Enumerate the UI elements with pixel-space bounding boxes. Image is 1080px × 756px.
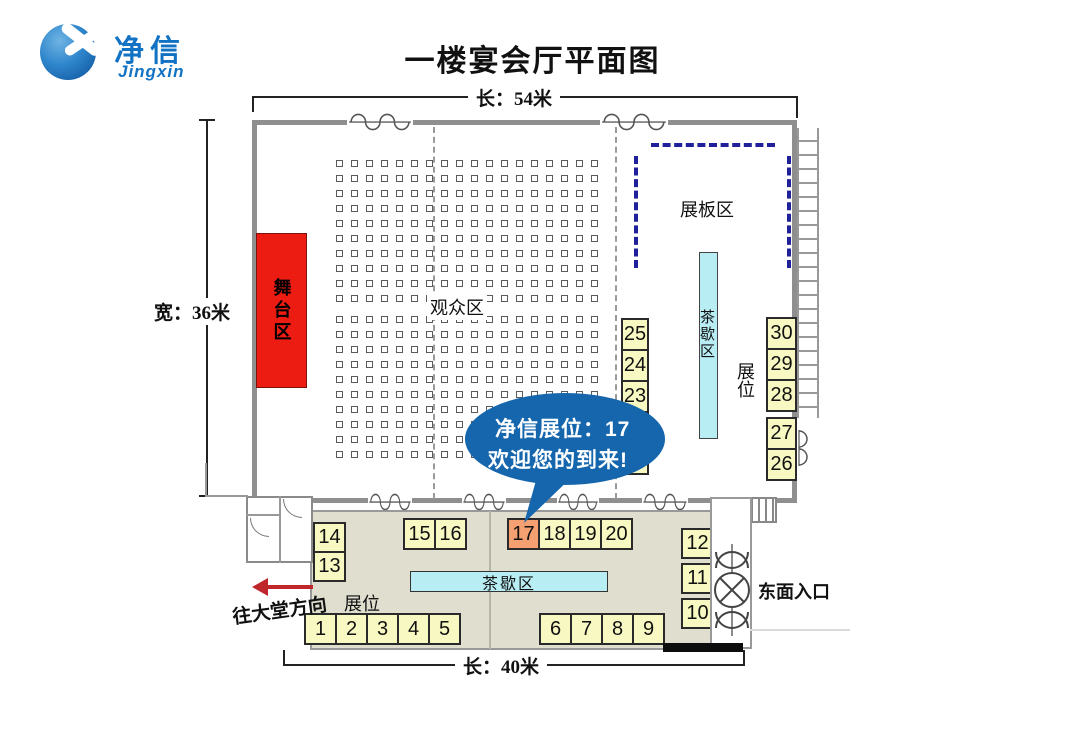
seat-square xyxy=(366,265,373,272)
seat-square xyxy=(501,361,508,368)
seat-square xyxy=(441,451,448,458)
seat-square xyxy=(336,265,343,272)
seat-square xyxy=(456,376,463,383)
seat-square xyxy=(336,406,343,413)
seat-square xyxy=(501,160,508,167)
seat-square xyxy=(336,316,343,323)
seat-square xyxy=(486,316,493,323)
seat-square xyxy=(486,235,493,242)
callout-bubble: 净信展位：17 欢迎您的到来! xyxy=(462,392,668,532)
booth-2: 2 xyxy=(335,613,368,645)
seat-square xyxy=(546,160,553,167)
seat-square xyxy=(366,280,373,287)
seat-square xyxy=(366,205,373,212)
seat-square xyxy=(426,205,433,212)
seat-square xyxy=(456,205,463,212)
seat-square xyxy=(441,190,448,197)
top-dimension-label: 长：54米 xyxy=(468,84,560,111)
tea-area-horizontal: 茶歇区 xyxy=(410,571,608,592)
seat-square xyxy=(456,280,463,287)
seat-square xyxy=(486,265,493,272)
seat-square xyxy=(336,280,343,287)
hall-booth-column-right-upper: 302928 xyxy=(766,317,797,412)
seat-square xyxy=(531,235,538,242)
seat-square xyxy=(426,235,433,242)
hatched-wall xyxy=(797,128,819,418)
double-door-icon xyxy=(347,109,413,135)
seat-square xyxy=(441,175,448,182)
seat-square xyxy=(576,205,583,212)
booth-8: 8 xyxy=(601,613,634,645)
seat-square xyxy=(396,361,403,368)
seat-square xyxy=(471,250,478,257)
seat-square xyxy=(381,406,388,413)
seat-square xyxy=(531,361,538,368)
seat-square xyxy=(366,160,373,167)
seat-square xyxy=(411,316,418,323)
seat-square xyxy=(351,250,358,257)
seat-square xyxy=(381,295,388,302)
seat-square xyxy=(426,406,433,413)
seat-square xyxy=(336,376,343,383)
display-board-dashed-line xyxy=(634,156,638,268)
seat-square xyxy=(501,220,508,227)
seat-square xyxy=(576,346,583,353)
seat-square xyxy=(441,235,448,242)
seat-square xyxy=(366,421,373,428)
seat-square xyxy=(576,175,583,182)
seat-square xyxy=(576,361,583,368)
seat-square xyxy=(426,280,433,287)
seat-square xyxy=(381,316,388,323)
seat-square xyxy=(486,220,493,227)
seat-square xyxy=(441,205,448,212)
seat-square xyxy=(441,220,448,227)
seat-square xyxy=(411,406,418,413)
display-board-dashed-line xyxy=(787,156,791,268)
seat-square xyxy=(366,316,373,323)
seat-square xyxy=(501,175,508,182)
seat-square xyxy=(486,205,493,212)
seat-square xyxy=(396,421,403,428)
seat-square xyxy=(531,160,538,167)
seat-square xyxy=(396,175,403,182)
seat-square xyxy=(516,376,523,383)
seat-square xyxy=(336,205,343,212)
seat-square xyxy=(471,160,478,167)
seat-square xyxy=(516,175,523,182)
seat-square xyxy=(381,175,388,182)
seat-square xyxy=(381,451,388,458)
left-dimension-label: 宽：36米 xyxy=(146,298,238,325)
seat-square xyxy=(426,265,433,272)
seat-square xyxy=(426,220,433,227)
seat-square xyxy=(336,361,343,368)
seat-square xyxy=(516,160,523,167)
seat-square xyxy=(426,391,433,398)
seat-square xyxy=(546,316,553,323)
seat-square xyxy=(426,361,433,368)
seat-square xyxy=(561,265,568,272)
seat-square xyxy=(561,220,568,227)
audience-label: 观众区 xyxy=(427,294,487,320)
seat-square xyxy=(441,160,448,167)
seat-square xyxy=(381,280,388,287)
seat-square xyxy=(516,190,523,197)
seat-square xyxy=(576,220,583,227)
seat-square xyxy=(591,280,598,287)
seat-square xyxy=(366,331,373,338)
seat-square xyxy=(426,451,433,458)
seat-square xyxy=(546,205,553,212)
seat-square xyxy=(576,265,583,272)
seat-square xyxy=(561,235,568,242)
seat-square xyxy=(591,376,598,383)
foyer-booths-top-left: 1516 xyxy=(403,518,467,550)
foyer-booths-bottom-left: 12345 xyxy=(304,613,461,645)
seat-square xyxy=(366,175,373,182)
seat-square xyxy=(516,295,523,302)
seat-square xyxy=(411,160,418,167)
seat-square xyxy=(366,346,373,353)
seat-square xyxy=(351,280,358,287)
seat-square xyxy=(411,265,418,272)
seat-square xyxy=(576,235,583,242)
seat-square xyxy=(426,421,433,428)
booth-27: 27 xyxy=(766,417,797,450)
seat-square xyxy=(426,436,433,443)
seat-square xyxy=(336,220,343,227)
seat-square xyxy=(426,376,433,383)
seat-square xyxy=(516,316,523,323)
seat-square xyxy=(516,265,523,272)
seat-square xyxy=(426,250,433,257)
seat-square xyxy=(411,250,418,257)
seat-square xyxy=(441,280,448,287)
seat-square xyxy=(441,250,448,257)
bottom-dimension-tick xyxy=(743,650,745,666)
seat-square xyxy=(501,190,508,197)
booth-28: 28 xyxy=(766,379,797,412)
seat-square xyxy=(546,175,553,182)
seat-square xyxy=(591,346,598,353)
seat-square xyxy=(486,331,493,338)
seat-square xyxy=(351,160,358,167)
seat-square xyxy=(381,421,388,428)
lobby-arrow-icon xyxy=(267,585,313,589)
seat-square xyxy=(501,205,508,212)
seat-square xyxy=(381,436,388,443)
seat-square xyxy=(336,250,343,257)
seat-square xyxy=(351,361,358,368)
seat-square xyxy=(351,235,358,242)
seat-square xyxy=(501,376,508,383)
tea-bar-label: 茶歇区 xyxy=(482,570,536,594)
seat-square xyxy=(351,376,358,383)
seat-square xyxy=(366,220,373,227)
seat-square xyxy=(396,451,403,458)
seat-square xyxy=(486,250,493,257)
seat-square xyxy=(501,316,508,323)
seat-square xyxy=(501,280,508,287)
seat-square xyxy=(456,190,463,197)
seat-square xyxy=(471,175,478,182)
seat-square xyxy=(336,421,343,428)
seat-square xyxy=(396,391,403,398)
seat-square xyxy=(456,175,463,182)
seat-square xyxy=(351,451,358,458)
seat-square xyxy=(336,295,343,302)
seat-square xyxy=(531,265,538,272)
revolving-door-icon xyxy=(712,542,752,638)
seat-square xyxy=(546,265,553,272)
seat-square xyxy=(396,331,403,338)
bottom-dimension-label: 长：40米 xyxy=(455,652,547,679)
seat-square xyxy=(471,331,478,338)
seat-square xyxy=(396,346,403,353)
seat-square xyxy=(546,376,553,383)
seat-square xyxy=(486,376,493,383)
seat-square xyxy=(336,451,343,458)
seat-square xyxy=(591,295,598,302)
seat-square xyxy=(426,190,433,197)
seat-square xyxy=(381,160,388,167)
seat-square xyxy=(411,376,418,383)
seat-square xyxy=(471,265,478,272)
tea-area-vertical: 茶歇区 xyxy=(699,252,718,439)
seat-square xyxy=(546,361,553,368)
seat-square xyxy=(351,331,358,338)
seat-square xyxy=(351,406,358,413)
seat-square xyxy=(351,175,358,182)
seat-square xyxy=(396,205,403,212)
stage-label: 舞台区 xyxy=(269,278,295,344)
seat-square xyxy=(351,316,358,323)
room-wall xyxy=(246,514,281,516)
seat-square xyxy=(381,265,388,272)
booth-7: 7 xyxy=(570,613,603,645)
seat-square xyxy=(516,205,523,212)
seat-square xyxy=(366,235,373,242)
seat-square xyxy=(396,406,403,413)
booth-26: 26 xyxy=(766,448,797,481)
seat-square xyxy=(546,235,553,242)
exterior-wall xyxy=(205,463,207,497)
seat-square xyxy=(471,361,478,368)
seat-square xyxy=(351,205,358,212)
seat-square xyxy=(561,376,568,383)
seat-square xyxy=(336,436,343,443)
tea-area-vertical-label: 茶歇区 xyxy=(700,309,717,360)
seat-square xyxy=(441,265,448,272)
seat-square xyxy=(531,220,538,227)
seat-square xyxy=(561,280,568,287)
seat-square xyxy=(591,316,598,323)
audience-seats-top xyxy=(336,160,598,302)
seat-square xyxy=(486,346,493,353)
seat-square xyxy=(366,190,373,197)
seat-square xyxy=(426,331,433,338)
seat-square xyxy=(456,331,463,338)
seat-square xyxy=(591,205,598,212)
seat-square xyxy=(471,220,478,227)
seat-square xyxy=(396,160,403,167)
seat-square xyxy=(546,220,553,227)
seat-square xyxy=(396,235,403,242)
seat-square xyxy=(336,175,343,182)
seat-square xyxy=(411,421,418,428)
seat-square xyxy=(561,250,568,257)
seat-square xyxy=(366,451,373,458)
logo-brand-en: Jingxin xyxy=(118,62,185,82)
seat-square xyxy=(471,190,478,197)
seat-square xyxy=(576,331,583,338)
seat-square xyxy=(561,316,568,323)
jingxin-logo: 净信 Jingxin xyxy=(18,10,228,90)
seat-square xyxy=(576,316,583,323)
seat-square xyxy=(591,160,598,167)
seat-square xyxy=(471,346,478,353)
seat-square xyxy=(501,331,508,338)
seat-square xyxy=(471,376,478,383)
seat-square xyxy=(381,220,388,227)
seat-square xyxy=(366,361,373,368)
seat-square xyxy=(396,190,403,197)
callout-line2: 欢迎您的到来! xyxy=(488,444,628,474)
seat-square xyxy=(531,346,538,353)
seat-square xyxy=(441,376,448,383)
seat-square xyxy=(516,220,523,227)
seat-square xyxy=(501,346,508,353)
hall-booth-column-right-lower: 2726 xyxy=(766,417,797,481)
bottom-dimension-tick xyxy=(283,650,285,666)
seat-square xyxy=(591,331,598,338)
seat-square xyxy=(486,295,493,302)
seat-square xyxy=(516,361,523,368)
booth-15: 15 xyxy=(403,518,436,550)
booth-4: 4 xyxy=(397,613,430,645)
seat-square xyxy=(336,190,343,197)
seat-square xyxy=(441,331,448,338)
seat-square xyxy=(396,280,403,287)
seat-square xyxy=(441,346,448,353)
staircase-icon xyxy=(749,497,777,523)
booth-13: 13 xyxy=(313,551,346,582)
seat-square xyxy=(396,376,403,383)
double-door-icon xyxy=(795,428,819,468)
seat-square xyxy=(546,331,553,338)
foyer-booths-bottom-right: 6789 xyxy=(539,613,665,645)
seat-square xyxy=(381,391,388,398)
seat-square xyxy=(441,361,448,368)
seat-square xyxy=(381,235,388,242)
seat-square xyxy=(516,331,523,338)
left-dimension-tick xyxy=(199,119,215,121)
seat-square xyxy=(516,250,523,257)
seat-square xyxy=(531,331,538,338)
seat-square xyxy=(591,250,598,257)
seat-square xyxy=(501,265,508,272)
seat-square xyxy=(486,190,493,197)
stage-area: 舞台区 xyxy=(256,233,307,388)
seat-square xyxy=(561,295,568,302)
seat-square xyxy=(366,391,373,398)
seat-square xyxy=(396,295,403,302)
seat-square xyxy=(576,280,583,287)
seat-square xyxy=(411,280,418,287)
seat-square xyxy=(411,295,418,302)
seat-square xyxy=(456,160,463,167)
seat-square xyxy=(351,421,358,428)
seat-square xyxy=(576,160,583,167)
seat-square xyxy=(336,346,343,353)
callout-line1: 净信展位：17 xyxy=(495,413,630,443)
page-title: 一楼宴会厅平面图 xyxy=(380,36,685,80)
seat-square xyxy=(411,331,418,338)
seat-square xyxy=(381,346,388,353)
seat-square xyxy=(381,205,388,212)
seat-square xyxy=(561,331,568,338)
seat-square xyxy=(591,235,598,242)
seat-square xyxy=(546,190,553,197)
seat-square xyxy=(471,205,478,212)
seat-square xyxy=(336,391,343,398)
seat-square xyxy=(501,295,508,302)
seat-square xyxy=(351,346,358,353)
seat-square xyxy=(411,436,418,443)
seat-square xyxy=(456,265,463,272)
seat-square xyxy=(561,361,568,368)
seat-square xyxy=(546,295,553,302)
seat-square xyxy=(501,250,508,257)
faint-line xyxy=(750,629,850,631)
seat-square xyxy=(591,265,598,272)
seat-square xyxy=(381,361,388,368)
seat-square xyxy=(531,280,538,287)
seat-square xyxy=(411,205,418,212)
wall-black-bar xyxy=(663,643,743,652)
seat-square xyxy=(441,391,448,398)
seat-square xyxy=(396,220,403,227)
seat-square xyxy=(576,376,583,383)
seat-square xyxy=(456,346,463,353)
seat-square xyxy=(546,346,553,353)
booth-29: 29 xyxy=(766,348,797,381)
seat-square xyxy=(591,190,598,197)
seat-square xyxy=(411,451,418,458)
seat-square xyxy=(531,376,538,383)
seat-square xyxy=(561,190,568,197)
seat-square xyxy=(576,250,583,257)
seat-square xyxy=(441,436,448,443)
seat-square xyxy=(561,160,568,167)
seat-square xyxy=(516,280,523,287)
booth-5: 5 xyxy=(428,613,461,645)
seat-square xyxy=(591,220,598,227)
seat-square xyxy=(411,361,418,368)
seat-square xyxy=(531,175,538,182)
seat-square xyxy=(351,295,358,302)
lobby-arrow-icon xyxy=(252,578,268,596)
top-dimension-tick xyxy=(796,96,798,118)
seat-square xyxy=(366,295,373,302)
seat-square xyxy=(411,220,418,227)
display-board-label: 展板区 xyxy=(680,196,734,222)
seat-square xyxy=(411,391,418,398)
seat-square xyxy=(396,265,403,272)
display-board-dashed-line xyxy=(651,143,775,147)
seat-square xyxy=(336,160,343,167)
